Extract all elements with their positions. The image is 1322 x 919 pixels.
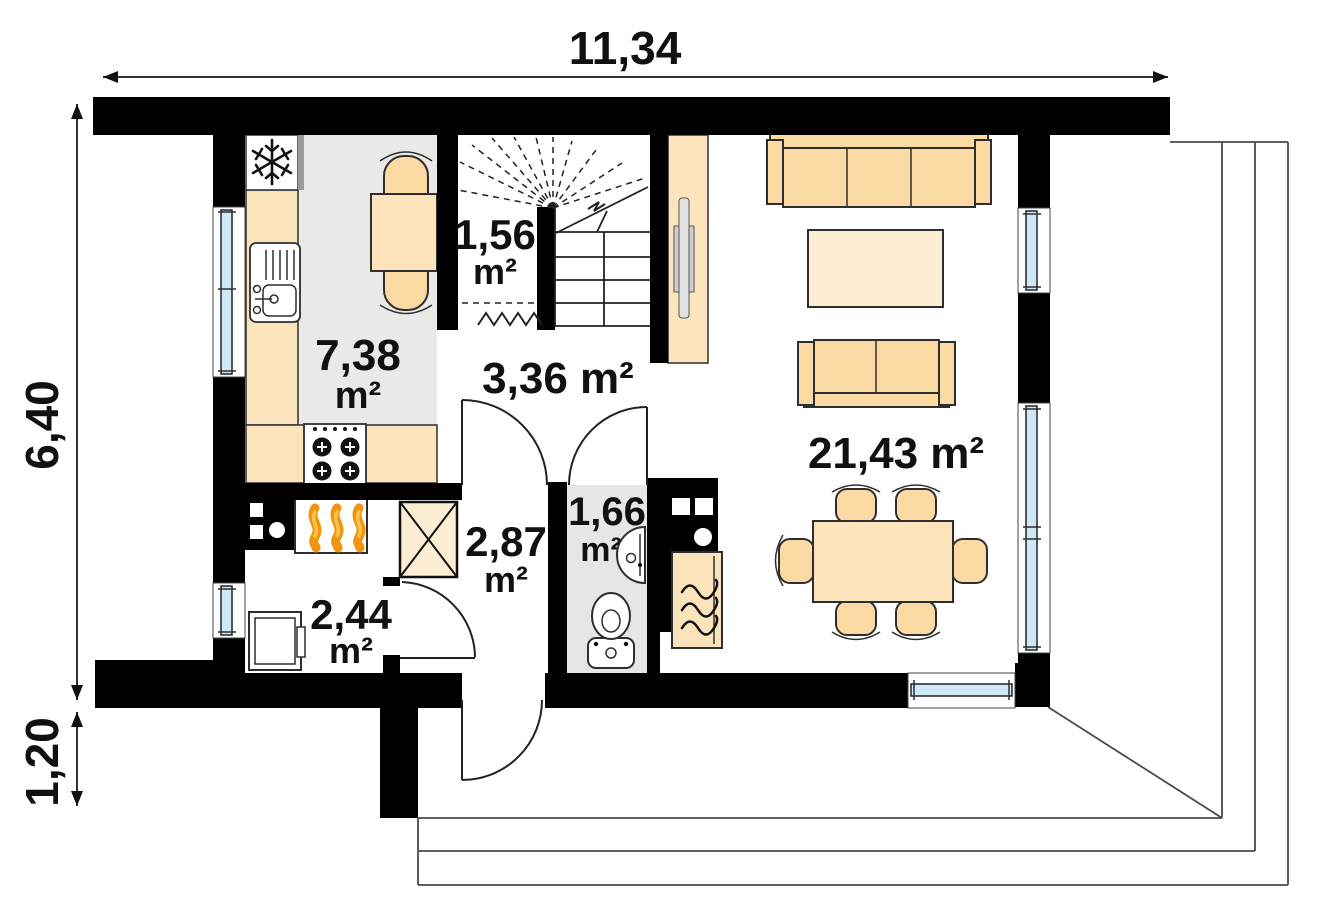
boiler-window: [213, 583, 245, 638]
height-dimension-label: 6,40: [16, 380, 68, 470]
dining-set-icon: [776, 485, 988, 640]
dining-window-bottom: [908, 673, 1015, 708]
left-wall: [213, 377, 245, 583]
living-area-label: 21,43 m²: [808, 429, 984, 478]
dimension-top: 11,34: [103, 22, 1168, 83]
understairs-zigzag: [478, 313, 542, 325]
wc-left-wall: [548, 482, 567, 673]
stairs-spine-wall: [537, 207, 555, 330]
stairs-right-wall: [650, 135, 668, 363]
entrance-door: [462, 700, 542, 780]
dining-chair: [836, 601, 876, 635]
top-wall: [93, 97, 1170, 135]
corridor-area-unit: m²: [484, 559, 528, 600]
right-wall: [1018, 135, 1050, 208]
two-seat-sofa: [798, 340, 955, 407]
porch-dimension-label: 1,20: [16, 717, 68, 807]
kitchen-area-unit: m²: [335, 375, 381, 417]
living-window-upper: [1018, 208, 1050, 293]
dimension-left-porch: 1,20: [16, 712, 83, 807]
upper-flight-dashed: [458, 137, 645, 208]
wardrobe-icon: [668, 135, 708, 363]
boiler-room-door: [400, 582, 475, 658]
sink-icon: [250, 243, 300, 322]
dining-chair: [836, 489, 876, 523]
shaft-x-icon: [400, 502, 457, 577]
kitchen-table: [371, 194, 437, 271]
terrace-diagonal: [1048, 707, 1222, 818]
corridor-area-label: 2,87: [465, 518, 547, 565]
wc-area-unit: m²: [580, 531, 622, 569]
wc-area-label: 1,66: [568, 490, 646, 534]
bottom-left-corner: [95, 660, 213, 708]
dining-table: [813, 521, 953, 602]
three-seat-sofa: [767, 132, 991, 207]
boiler-area-unit: m²: [329, 630, 373, 671]
stove-burners-icon: [304, 424, 366, 484]
fireplace: [647, 478, 722, 673]
dimension-left-main: 6,40: [16, 104, 83, 700]
boiler-door-jamb: [383, 655, 400, 673]
dining-chair: [952, 539, 987, 583]
hall-boiler-wall: [245, 483, 462, 500]
understairs-area-unit: m²: [473, 251, 517, 292]
right-wall: [1018, 653, 1050, 673]
porch-side-wall: [380, 708, 418, 818]
floor-plan-page: 7,38 m² 1,56 m² 3,36 m² 2,87 m² 1,66 m² …: [0, 0, 1322, 919]
boiler-door-jamb: [383, 577, 400, 586]
washing-machine-icon: [249, 612, 305, 670]
flue-block: [245, 493, 295, 550]
winder-edge: [556, 187, 648, 233]
kitchen-window: [213, 207, 245, 377]
coffee-table: [808, 230, 943, 307]
hall-corridor-door: [462, 400, 547, 485]
right-wall: [1018, 293, 1050, 403]
floor-plan-drawing: 7,38 m² 1,56 m² 3,36 m² 2,87 m² 1,66 m² …: [0, 0, 1322, 919]
living-window-lower: [1018, 403, 1050, 653]
width-dimension-label: 11,34: [569, 22, 682, 74]
hall-area-label: 3,36 m²: [482, 354, 634, 403]
left-wall: [213, 135, 245, 207]
dining-chair: [896, 601, 936, 635]
fridge-divider: [298, 135, 304, 190]
wc-door: [569, 407, 647, 485]
bottom-wall: [213, 673, 462, 708]
bottom-wall: [545, 673, 908, 708]
kitchen-area-label: 7,38: [315, 331, 401, 380]
dining-chair: [779, 539, 814, 583]
left-wall: [213, 638, 245, 678]
dining-chair: [896, 489, 936, 523]
furnace-flame-icon: [295, 498, 367, 553]
